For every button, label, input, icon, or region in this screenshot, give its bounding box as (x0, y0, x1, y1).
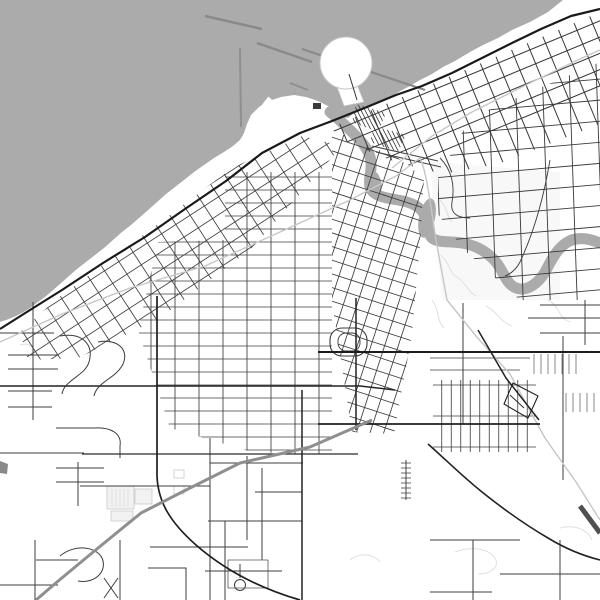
map-canvas (0, 0, 600, 600)
mall-building (107, 486, 134, 509)
dock-building (313, 103, 321, 109)
mall-building (111, 511, 133, 521)
breakwater (240, 48, 241, 127)
harbor-peninsula (320, 37, 372, 89)
mall-building (135, 489, 152, 504)
map-viewport (0, 0, 600, 600)
